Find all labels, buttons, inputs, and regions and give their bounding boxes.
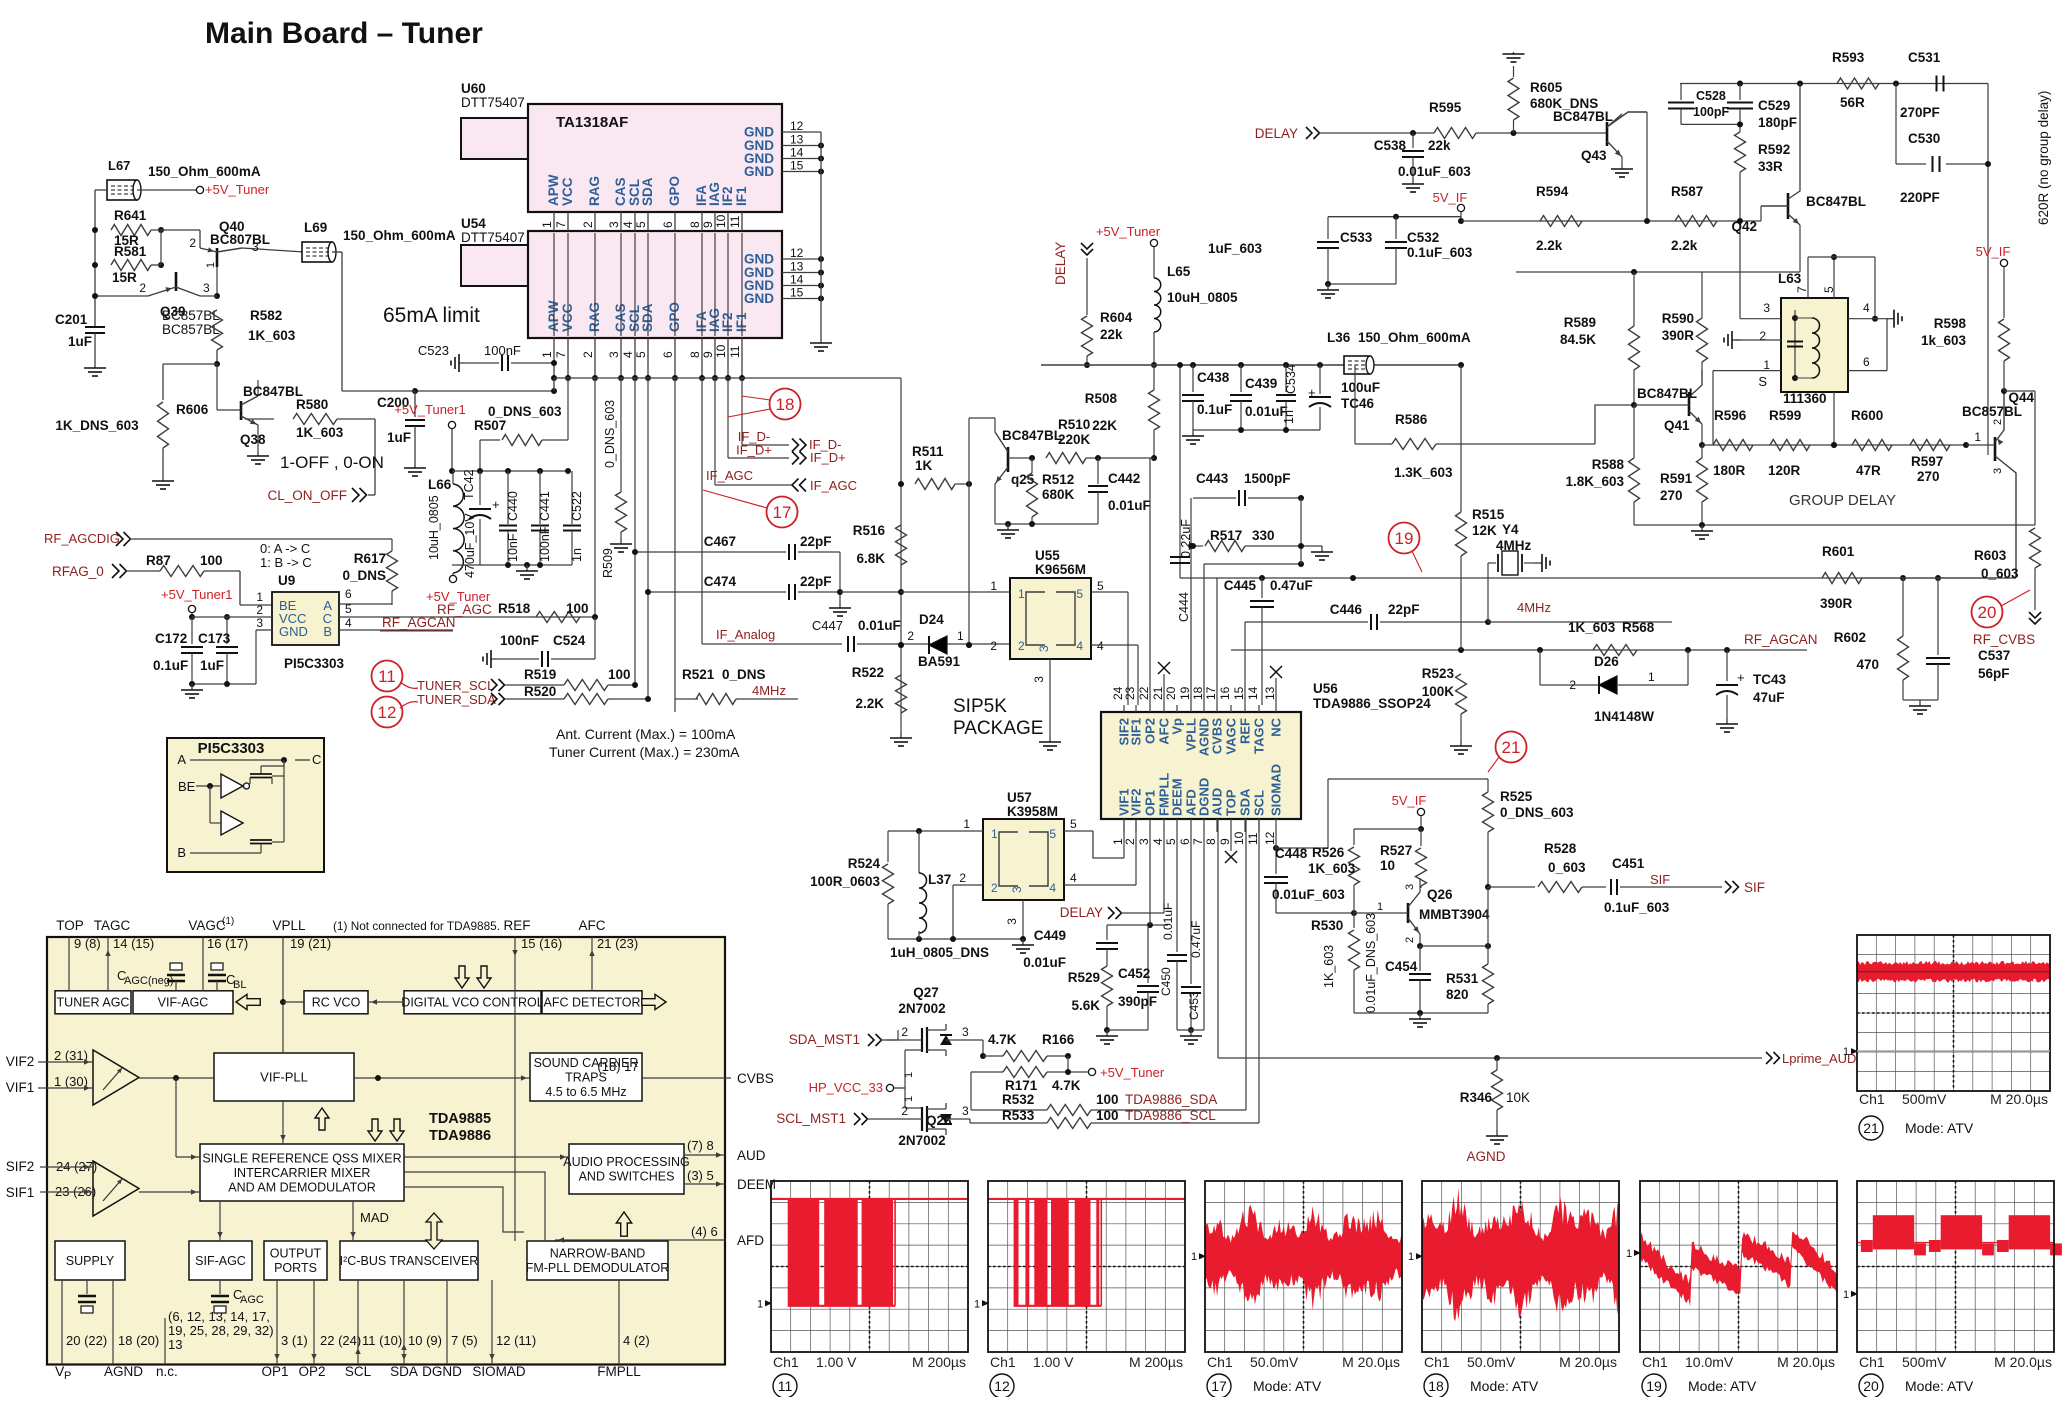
svg-text:R507: R507 (474, 418, 506, 433)
svg-text:BC847BL: BC847BL (1553, 109, 1613, 124)
svg-text:SUPPLY: SUPPLY (66, 1254, 115, 1268)
svg-text:U54: U54 (461, 216, 486, 231)
svg-text:SIF: SIF (1650, 872, 1670, 887)
svg-text:4: 4 (1076, 639, 1083, 653)
svg-text:R530: R530 (1311, 918, 1343, 933)
svg-text:R598: R598 (1934, 316, 1967, 331)
svg-text:D24: D24 (919, 612, 944, 627)
svg-text:INTERCARRIER MIXER: INTERCARRIER MIXER (234, 1166, 371, 1180)
svg-text:R529: R529 (1068, 970, 1100, 985)
svg-text:C528: C528 (1696, 89, 1726, 103)
svg-text:1 (30): 1 (30) (54, 1074, 88, 1089)
svg-text:0.01uF_603: 0.01uF_603 (1398, 164, 1471, 179)
svg-text:15R: 15R (112, 270, 137, 285)
svg-text:AUDIO PROCESSING: AUDIO PROCESSING (563, 1155, 689, 1169)
svg-text:6: 6 (345, 587, 352, 601)
svg-text:100nF: 100nF (500, 633, 539, 648)
svg-text:1-OFF , 0-ON: 1-OFF , 0-ON (280, 453, 384, 472)
svg-text:3: 3 (1037, 645, 1051, 652)
svg-text:9: 9 (701, 351, 715, 358)
svg-text:M 20.0µs: M 20.0µs (1559, 1354, 1617, 1370)
svg-text:15: 15 (1232, 686, 1246, 700)
svg-text:12 (11): 12 (11) (496, 1333, 536, 1348)
svg-text:20 (22): 20 (22) (66, 1333, 107, 1348)
svg-text:(3) 5: (3) 5 (687, 1168, 714, 1183)
svg-text:A: A (177, 752, 186, 767)
svg-text:1.00 V: 1.00 V (816, 1354, 857, 1370)
svg-text:CVBS: CVBS (737, 1071, 774, 1086)
svg-text:11 (10): 11 (10) (362, 1333, 402, 1348)
svg-text:100: 100 (1096, 1092, 1119, 1107)
svg-text:SCL: SCL (345, 1364, 372, 1379)
svg-text:6: 6 (1178, 838, 1192, 845)
svg-text:OP2: OP2 (1143, 718, 1158, 744)
svg-text:AUD: AUD (1210, 788, 1225, 816)
svg-text:390pF: 390pF (1118, 994, 1157, 1009)
svg-text:FM-PLL DEMODULATOR: FM-PLL DEMODULATOR (526, 1261, 670, 1275)
svg-text:TC42: TC42 (462, 469, 476, 500)
svg-text:5V_IF: 5V_IF (1392, 793, 1427, 808)
svg-text:20: 20 (1863, 1378, 1879, 1394)
svg-text:RC VCO: RC VCO (312, 996, 361, 1010)
svg-text:1.3K_603: 1.3K_603 (1394, 465, 1453, 480)
svg-text:RF_AGCAN: RF_AGCAN (382, 615, 456, 630)
svg-text:3: 3 (607, 351, 621, 358)
svg-text:14: 14 (790, 273, 804, 287)
svg-text:Tuner Current (Max.) = 230mA: Tuner Current (Max.) = 230mA (549, 744, 740, 760)
svg-text:2: 2 (907, 629, 914, 643)
svg-text:APW: APW (546, 174, 561, 206)
svg-text:DELAY: DELAY (1053, 242, 1068, 285)
svg-text:Y4: Y4 (1502, 522, 1519, 537)
svg-text:R594: R594 (1536, 184, 1569, 199)
svg-text:D26: D26 (1594, 654, 1619, 669)
svg-text:R599: R599 (1769, 408, 1801, 423)
svg-text:R581: R581 (114, 244, 147, 259)
svg-text:Ch1: Ch1 (1859, 1354, 1885, 1370)
svg-text:2: 2 (139, 281, 146, 295)
svg-text:1: 1 (963, 817, 970, 831)
svg-text:22K: 22K (1092, 418, 1117, 433)
svg-text:1: 1 (1843, 1289, 1849, 1301)
svg-text:19: 19 (1178, 686, 1192, 700)
svg-text:1K_603: 1K_603 (296, 425, 344, 440)
svg-text:+5V_Tuner: +5V_Tuner (1100, 1065, 1165, 1080)
svg-text:SIF: SIF (1744, 880, 1765, 895)
svg-text:2.2k: 2.2k (1536, 238, 1563, 253)
svg-text:13: 13 (1263, 686, 1277, 700)
svg-text:IF_D+: IF_D+ (810, 450, 846, 465)
svg-text:M 200µs: M 200µs (1129, 1354, 1183, 1370)
svg-text:R582: R582 (250, 308, 282, 323)
svg-text:21: 21 (1502, 738, 1521, 757)
svg-text:I²C-BUS TRANSCEIVER: I²C-BUS TRANSCEIVER (340, 1254, 479, 1268)
svg-text:VAGC: VAGC (1224, 717, 1239, 754)
svg-text:NARROW-BAND: NARROW-BAND (550, 1247, 646, 1261)
svg-text:R602: R602 (1834, 630, 1866, 645)
svg-text:PACKAGE: PACKAGE (953, 718, 1043, 739)
svg-text:TDA9886_SDA: TDA9886_SDA (1125, 1092, 1217, 1107)
svg-text:C443: C443 (1196, 471, 1229, 486)
svg-text:100: 100 (608, 667, 631, 682)
svg-text:9: 9 (701, 221, 715, 228)
svg-text:150_Ohm_600mA: 150_Ohm_600mA (343, 228, 456, 243)
svg-text:470: 470 (1856, 657, 1879, 672)
svg-text:12: 12 (1263, 831, 1277, 845)
svg-text:180R: 180R (1713, 463, 1746, 478)
svg-text:SCL_MST1: SCL_MST1 (776, 1111, 846, 1126)
svg-text:R603: R603 (1974, 548, 2007, 563)
svg-text:18: 18 (1191, 686, 1205, 700)
svg-text:TDA9886: TDA9886 (429, 1128, 491, 1144)
svg-text:Q41: Q41 (1664, 418, 1690, 433)
svg-text:2: 2 (901, 1104, 908, 1118)
svg-text:10: 10 (1380, 858, 1395, 873)
svg-text:AND AM DEMODULATOR: AND AM DEMODULATOR (228, 1180, 375, 1194)
svg-text:1.8K_603: 1.8K_603 (1565, 474, 1624, 489)
svg-text:R528: R528 (1544, 841, 1577, 856)
svg-text:4.5 to 6.5 MHz: 4.5 to 6.5 MHz (545, 1085, 626, 1099)
svg-text:C448: C448 (1275, 846, 1308, 861)
svg-text:330: 330 (1252, 528, 1275, 543)
svg-text:1: 1 (903, 1072, 915, 1078)
svg-text:P: P (64, 1370, 71, 1382)
svg-text:Q44: Q44 (2008, 390, 2034, 405)
svg-text:21: 21 (1863, 1120, 1879, 1136)
svg-text:270: 270 (1917, 469, 1940, 484)
svg-text:10uH_0805: 10uH_0805 (427, 495, 441, 560)
svg-text:0.47uF: 0.47uF (1189, 921, 1203, 958)
svg-text:AFD: AFD (737, 1233, 764, 1248)
svg-text:0.01uF_DNS_603: 0.01uF_DNS_603 (1364, 913, 1378, 1013)
svg-text:100: 100 (1096, 1108, 1119, 1123)
svg-text:TAGC: TAGC (1252, 717, 1267, 753)
svg-text:Mode: ATV: Mode: ATV (1905, 1120, 1974, 1136)
svg-text:TOP: TOP (1224, 789, 1239, 816)
svg-text:150_Ohm_600mA: 150_Ohm_600mA (1358, 330, 1471, 345)
svg-text:M 20.0µs: M 20.0µs (1990, 1091, 2048, 1107)
svg-text:Ch1: Ch1 (773, 1354, 799, 1370)
svg-text:120R: 120R (1768, 463, 1801, 478)
svg-text:22pF: 22pF (800, 534, 832, 549)
svg-text:220K: 220K (1058, 432, 1091, 447)
svg-text:IF_AGC: IF_AGC (706, 468, 753, 483)
svg-text:R522: R522 (852, 665, 884, 680)
svg-text:0.01uF: 0.01uF (858, 618, 901, 633)
svg-text:1uF: 1uF (68, 334, 92, 349)
svg-text:2: 2 (189, 236, 196, 250)
svg-text:C447: C447 (812, 618, 843, 633)
svg-text:3: 3 (1404, 884, 1416, 890)
svg-text:R600: R600 (1851, 408, 1883, 423)
svg-text:100nF: 100nF (538, 526, 552, 562)
svg-text:OP2: OP2 (298, 1364, 325, 1379)
svg-text:4 (2): 4 (2) (623, 1333, 650, 1348)
svg-text:R604: R604 (1100, 310, 1133, 325)
svg-text:15: 15 (790, 159, 804, 173)
svg-text:1: 1 (540, 351, 554, 358)
svg-text:270: 270 (1660, 488, 1683, 503)
svg-text:R595: R595 (1429, 100, 1462, 115)
svg-text:R520: R520 (524, 684, 556, 699)
svg-text:1K_603: 1K_603 (1322, 945, 1336, 988)
svg-text:Q27: Q27 (913, 985, 939, 1000)
svg-text:100nF: 100nF (484, 343, 521, 358)
svg-text:SIP5K: SIP5K (953, 696, 1007, 717)
svg-text:19 (21): 19 (21) (290, 936, 331, 951)
svg-text:TA1318AF: TA1318AF (556, 114, 628, 131)
svg-text:7: 7 (1191, 838, 1205, 845)
svg-text:GND: GND (744, 164, 774, 179)
svg-text:6: 6 (661, 351, 675, 358)
svg-text:C537: C537 (1978, 648, 2010, 663)
svg-text:2: 2 (1992, 419, 2004, 425)
svg-text:2N7002: 2N7002 (898, 1133, 945, 1148)
svg-text:IF2: IF2 (720, 186, 735, 206)
svg-text:12: 12 (790, 119, 804, 133)
svg-text:13: 13 (790, 260, 804, 274)
svg-text:1: 1 (256, 590, 263, 604)
svg-text:TUNER AGC: TUNER AGC (57, 996, 130, 1010)
svg-text:Main Board – Tuner: Main Board – Tuner (205, 17, 483, 50)
svg-text:2: 2 (901, 1025, 908, 1039)
svg-text:R605: R605 (1530, 80, 1563, 95)
svg-text:AFC DETECTOR: AFC DETECTOR (544, 996, 641, 1010)
svg-text:TOP: TOP (56, 918, 84, 933)
svg-text:1K: 1K (915, 458, 933, 473)
svg-text:AGND: AGND (104, 1364, 143, 1379)
svg-text:8: 8 (688, 351, 702, 358)
svg-text:TDA9885: TDA9885 (429, 1111, 491, 1127)
svg-text:L63: L63 (1778, 271, 1802, 286)
svg-text:AND SWITCHES: AND SWITCHES (579, 1170, 675, 1184)
svg-text:100: 100 (200, 553, 223, 568)
svg-text:(1): (1) (222, 916, 234, 927)
svg-text:100K: 100K (1422, 684, 1455, 699)
svg-text:1: 1 (205, 262, 217, 268)
svg-text:Ch1: Ch1 (990, 1354, 1016, 1370)
svg-text:C522: C522 (570, 491, 584, 521)
svg-text:TDA9886_SSOP24: TDA9886_SSOP24 (1313, 696, 1431, 711)
svg-text:3: 3 (256, 616, 263, 630)
svg-text:REF: REF (1238, 718, 1253, 744)
svg-text:84.5K: 84.5K (1560, 332, 1596, 347)
svg-text:+5V_Tuner: +5V_Tuner (205, 182, 270, 197)
svg-text:R617: R617 (354, 551, 386, 566)
svg-text:REF: REF (504, 918, 531, 933)
svg-text:14: 14 (1246, 686, 1260, 700)
svg-text:IF_D+: IF_D+ (736, 443, 772, 458)
svg-text:11: 11 (728, 345, 742, 358)
svg-text:390R: 390R (1662, 328, 1695, 343)
svg-text:OUTPUT: OUTPUT (270, 1247, 322, 1261)
svg-text:3 (1): 3 (1) (281, 1333, 308, 1348)
svg-text:5: 5 (1076, 587, 1083, 601)
svg-text:GND: GND (744, 291, 774, 306)
svg-text:4: 4 (621, 221, 635, 228)
svg-text:12: 12 (378, 703, 397, 722)
svg-text:50.0mV: 50.0mV (1467, 1354, 1516, 1370)
svg-text:C523: C523 (418, 343, 449, 358)
svg-text:C534: C534 (1284, 364, 1298, 394)
svg-text:0.22uF: 0.22uF (1179, 519, 1193, 558)
svg-text:R592: R592 (1758, 142, 1790, 157)
svg-text:+: + (1308, 385, 1316, 400)
svg-text:TC46: TC46 (1341, 396, 1375, 411)
svg-text:1N4148W: 1N4148W (1594, 709, 1654, 724)
svg-text:Ch1: Ch1 (1207, 1354, 1233, 1370)
svg-text:1: 1 (957, 629, 964, 643)
svg-text:M 200µs: M 200µs (912, 1354, 966, 1370)
svg-text:500mV: 500mV (1902, 1091, 1947, 1107)
svg-text:C442: C442 (1108, 471, 1140, 486)
svg-text:SDA_MST1: SDA_MST1 (789, 1032, 860, 1047)
svg-text:R166: R166 (1042, 1032, 1075, 1047)
svg-text:5: 5 (1049, 827, 1056, 841)
svg-text:DTT75407: DTT75407 (461, 95, 525, 110)
svg-text:4.7K: 4.7K (1052, 1078, 1081, 1093)
svg-text:2: 2 (1759, 329, 1766, 343)
svg-text:AUD: AUD (737, 1148, 766, 1163)
svg-text:5V_IF: 5V_IF (1433, 190, 1468, 205)
svg-text:1K_DNS_603: 1K_DNS_603 (55, 418, 139, 433)
svg-text:680K: 680K (1042, 487, 1075, 502)
svg-text:3: 3 (607, 221, 621, 228)
svg-text:0.01uF: 0.01uF (1108, 498, 1151, 513)
svg-text:R517: R517 (1210, 528, 1242, 543)
svg-text:R511: R511 (912, 444, 944, 459)
svg-text:R606: R606 (176, 402, 209, 417)
svg-text:SDA: SDA (390, 1364, 418, 1379)
svg-text:NC: NC (1269, 717, 1284, 736)
svg-text:M 20.0µs: M 20.0µs (1342, 1354, 1400, 1370)
svg-text:BC857BL: BC857BL (1962, 404, 2022, 419)
svg-text:L67: L67 (108, 158, 130, 173)
svg-text:7: 7 (1795, 286, 1809, 293)
svg-text:2: 2 (1569, 678, 1576, 692)
svg-text:DELAY: DELAY (1255, 126, 1298, 141)
svg-text:SIF2: SIF2 (6, 1159, 35, 1174)
svg-text:47uF: 47uF (1753, 690, 1785, 705)
svg-text:R527: R527 (1380, 843, 1412, 858)
svg-text:C532: C532 (1407, 230, 1439, 245)
svg-text:R591: R591 (1660, 471, 1693, 486)
svg-text:C530: C530 (1908, 131, 1940, 146)
svg-text:TUNER_SDA: TUNER_SDA (417, 692, 496, 707)
svg-text:SIF1: SIF1 (1129, 718, 1144, 745)
svg-text:1.00 V: 1.00 V (1033, 1354, 1074, 1370)
svg-text:Ch1: Ch1 (1642, 1354, 1668, 1370)
svg-text:1uF: 1uF (200, 658, 224, 673)
svg-text:CL_ON_OFF: CL_ON_OFF (267, 488, 347, 503)
svg-text:18 (20): 18 (20) (118, 1333, 159, 1348)
svg-text:HP_VCC_33: HP_VCC_33 (809, 1080, 883, 1095)
svg-text:620R (no group delay): 620R (no group delay) (2036, 91, 2051, 225)
svg-text:0.1uF_603: 0.1uF_603 (1604, 900, 1670, 915)
svg-text:4: 4 (345, 616, 352, 630)
svg-text:3: 3 (1032, 676, 1046, 683)
svg-text:100: 100 (566, 601, 589, 616)
svg-text:0.1uF_603: 0.1uF_603 (1407, 245, 1473, 260)
svg-text:TAGC: TAGC (94, 918, 131, 933)
svg-text:111360: 111360 (1783, 391, 1827, 406)
svg-text:M 20.0µs: M 20.0µs (1777, 1354, 1835, 1370)
svg-text:18: 18 (776, 395, 795, 414)
svg-text:R519: R519 (524, 667, 556, 682)
svg-text:VIF-AGC: VIF-AGC (158, 996, 209, 1010)
svg-text:1: 1 (540, 221, 554, 228)
svg-text:22: 22 (1137, 686, 1151, 700)
svg-text:17: 17 (1204, 686, 1218, 700)
svg-text:0: A -> C: 0: A -> C (260, 541, 310, 556)
svg-text:TDA9886_SCL: TDA9886_SCL (1125, 1108, 1216, 1123)
svg-text:VIF2: VIF2 (6, 1054, 35, 1069)
svg-text:+5V_Tuner1: +5V_Tuner1 (161, 587, 232, 602)
svg-text:L36: L36 (1327, 330, 1351, 345)
svg-text:0_DNS_603: 0_DNS_603 (488, 404, 562, 419)
svg-text:PORTS: PORTS (274, 1261, 317, 1275)
svg-text:VIF1: VIF1 (6, 1080, 35, 1095)
svg-text:2: 2 (256, 603, 263, 617)
svg-text:0_603: 0_603 (1548, 860, 1586, 875)
svg-text:2: 2 (1123, 838, 1137, 845)
svg-text:17: 17 (773, 503, 792, 522)
svg-text:47R: 47R (1856, 463, 1881, 478)
svg-text:100pF: 100pF (1693, 105, 1729, 119)
svg-text:R346: R346 (1460, 1090, 1493, 1105)
svg-text:16: 16 (1218, 686, 1232, 700)
svg-text:R521: R521 (682, 667, 715, 682)
svg-text:RFAG_0: RFAG_0 (52, 564, 104, 579)
svg-text:R590: R590 (1662, 311, 1694, 326)
svg-text:BC847BL: BC847BL (243, 384, 303, 399)
svg-text:R509: R509 (601, 548, 615, 578)
svg-text:5V_IF: 5V_IF (1976, 244, 2011, 259)
svg-text:C440: C440 (506, 491, 520, 521)
svg-text:R516: R516 (853, 523, 886, 538)
svg-text:GND: GND (279, 624, 308, 639)
svg-text:4.7K: 4.7K (988, 1032, 1017, 1047)
svg-text:13: 13 (790, 133, 804, 147)
svg-text:+5V_Tuner1: +5V_Tuner1 (394, 402, 465, 417)
svg-text:IF_Analog: IF_Analog (716, 627, 775, 642)
svg-text:R533: R533 (1002, 1108, 1035, 1123)
svg-text:3: 3 (1992, 468, 2004, 474)
svg-text:PI5C3303: PI5C3303 (198, 740, 265, 757)
svg-text:Q42: Q42 (1731, 219, 1757, 234)
svg-text:17: 17 (1211, 1378, 1227, 1394)
svg-text:1: 1 (1626, 1248, 1632, 1260)
svg-text:0.1uF: 0.1uF (153, 658, 188, 673)
svg-text:OP1: OP1 (1143, 790, 1158, 816)
svg-text:C531: C531 (1908, 50, 1941, 65)
svg-text:BA591: BA591 (918, 654, 961, 669)
svg-text:BC847BL: BC847BL (1002, 428, 1062, 443)
svg-text:C173: C173 (198, 631, 231, 646)
svg-text:BC847BL: BC847BL (1637, 386, 1697, 401)
svg-text:MAD: MAD (360, 1210, 389, 1225)
svg-text:AFC: AFC (579, 918, 606, 933)
svg-text:0.01uF_603: 0.01uF_603 (1272, 887, 1345, 902)
svg-text:2: 2 (581, 351, 595, 358)
svg-text:K9656M: K9656M (1035, 562, 1086, 577)
svg-text:150_Ohm_600mA: 150_Ohm_600mA (148, 164, 261, 179)
svg-text:500mV: 500mV (1902, 1354, 1947, 1370)
svg-text:3: 3 (1763, 301, 1770, 315)
svg-text:C467: C467 (704, 534, 736, 549)
svg-text:BL: BL (233, 979, 246, 991)
svg-text:5: 5 (634, 351, 648, 358)
